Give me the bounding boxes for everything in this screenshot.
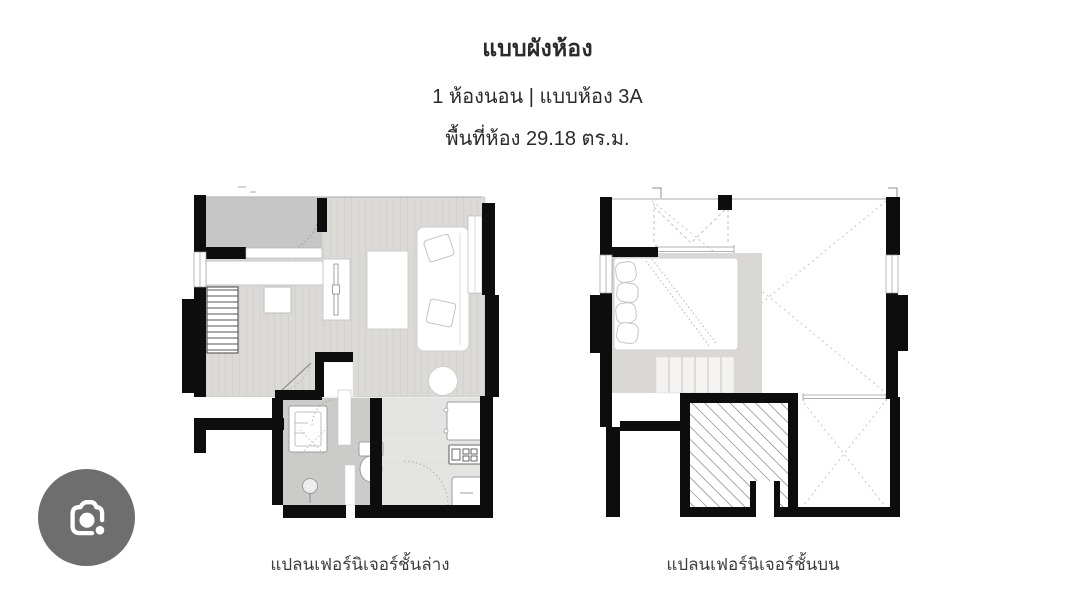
tv-panel — [323, 259, 350, 320]
dimension-bracket-left — [652, 188, 661, 198]
side-table — [429, 367, 458, 396]
page-title: แบบผังห้อง — [0, 31, 1075, 67]
pillow — [615, 302, 637, 324]
fridge — [444, 402, 481, 440]
lower-plan-caption: แปลนเฟอร์นิเจอร์ชั้นล่าง — [180, 551, 540, 578]
railing-bottom-right — [803, 393, 886, 401]
shower-partition — [338, 390, 351, 445]
shelf-unit — [207, 287, 238, 353]
railing-above-bed — [656, 245, 734, 254]
upper-floor-plan — [588, 185, 918, 525]
room-type-line: 1 ห้องนอน | แบบห้อง 3A — [0, 80, 1075, 112]
window-left — [600, 255, 612, 293]
camera-lens-button[interactable] — [38, 469, 135, 566]
bed — [614, 258, 738, 350]
pillow — [615, 261, 638, 284]
dimension-bracket-right — [888, 188, 897, 198]
desk-counter — [206, 261, 323, 285]
lower-floor-plan — [180, 185, 502, 525]
title-block: แบบผังห้อง 1 ห้องนอน | แบบห้อง 3A พื้นที… — [0, 31, 1075, 154]
hatched-void — [680, 393, 798, 517]
stove-cooktop — [449, 445, 481, 464]
window-right — [886, 255, 898, 293]
dining-table — [367, 251, 408, 329]
stool — [264, 287, 291, 313]
pillow — [616, 322, 640, 345]
window-left — [194, 252, 206, 287]
upper-plan-caption: แปลนเฟอร์นิเจอร์ชั้นบน — [588, 551, 918, 578]
camera-icon — [51, 482, 123, 554]
bathroom-sink — [289, 406, 327, 452]
stairs — [656, 357, 734, 393]
room-area-line: พื้นที่ห้อง 29.18 ตร.ม. — [0, 122, 1075, 154]
pillow — [616, 282, 639, 303]
void-cross-marks-bottom — [804, 403, 884, 505]
dimension-ticks — [238, 187, 256, 192]
wardrobe-dashed-marks — [654, 203, 728, 245]
balcony-ledge — [246, 248, 322, 258]
sofa — [417, 227, 469, 351]
window-ledge-right — [468, 216, 482, 293]
